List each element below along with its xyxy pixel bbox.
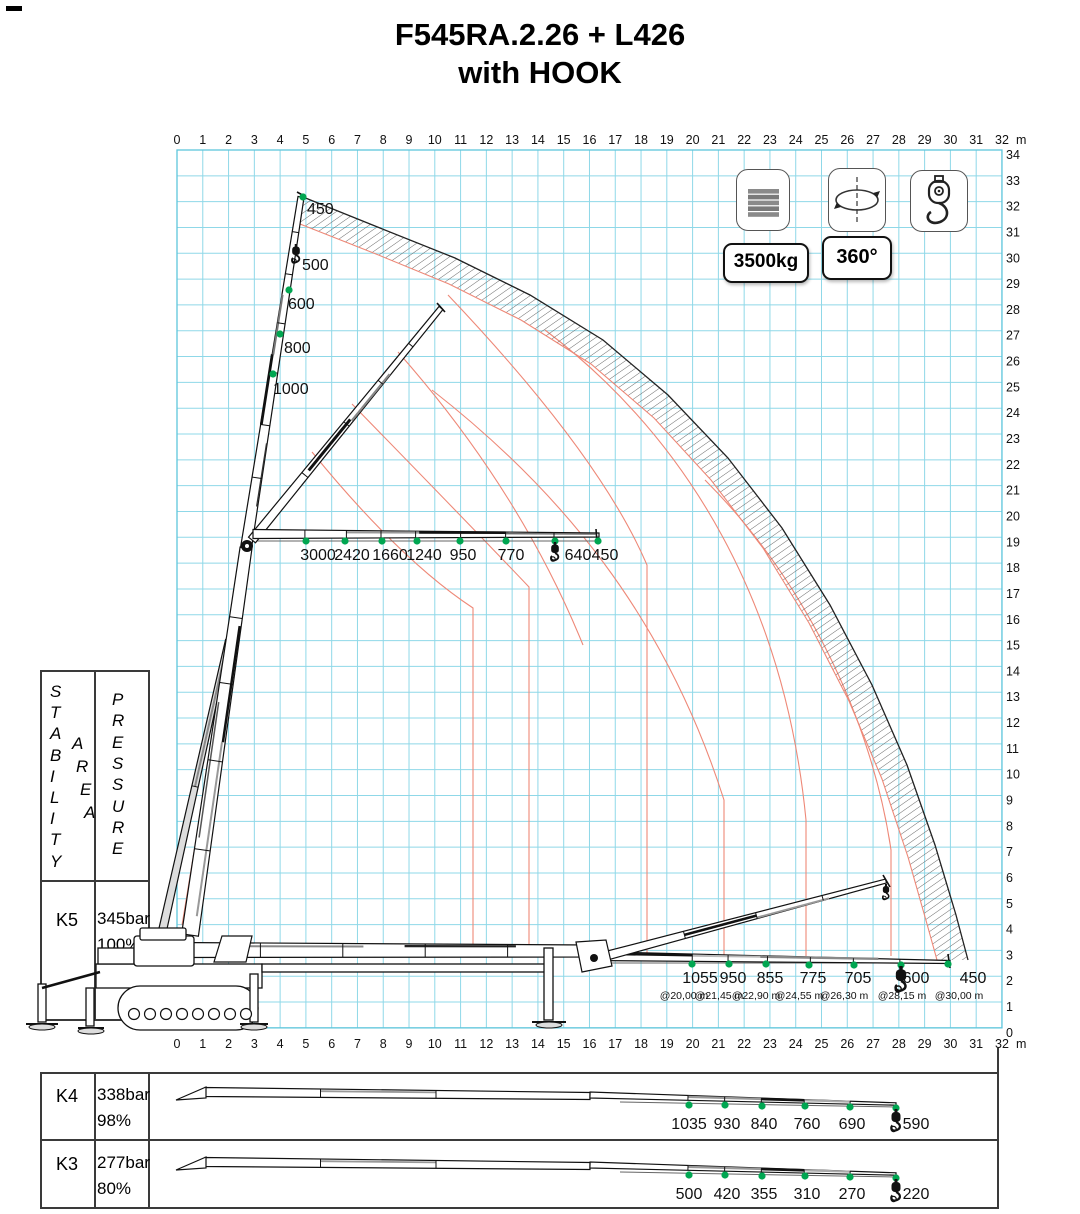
hook-icon [883, 884, 890, 900]
axis-label-right: 1 [1006, 1000, 1013, 1014]
horizontal-jib-load-value: 450 [592, 547, 619, 564]
vertical-jib-load-value: 450 [307, 201, 334, 218]
axis-label-top: 25 [815, 133, 829, 147]
limit-hatch-band [300, 197, 968, 960]
luffing-cylinder [158, 640, 230, 934]
boom-section-divider [684, 932, 686, 939]
boom-section [352, 374, 390, 420]
axis-label-right: 3 [1006, 948, 1013, 962]
knuckle-pivot [241, 540, 253, 552]
limit-inner-edge [300, 224, 937, 960]
plate [748, 212, 779, 217]
axis-label-top: 10 [428, 133, 442, 147]
axis-unit-top: m [1016, 133, 1026, 147]
outrigger-pad [78, 1028, 104, 1034]
axis-label-top: 19 [660, 133, 674, 147]
axis-label-bottom: 7 [354, 1037, 361, 1051]
vertical-jib-load-value: 500 [302, 257, 329, 274]
ground-boom-load-dot [725, 960, 732, 967]
vertical-letter: L [50, 788, 59, 808]
vertical-letter: I [50, 809, 55, 829]
outrigger-pad [536, 1022, 562, 1028]
boom-section [223, 626, 240, 742]
pressure-value: 345bar [97, 906, 150, 932]
hook-icon [895, 966, 906, 992]
axis-label-bottom: 30 [943, 1037, 957, 1051]
vertical-letter: R [76, 757, 88, 777]
k3-load-dot [892, 1174, 899, 1181]
ground-boom-load-value: 855 [757, 970, 784, 987]
plate [748, 206, 779, 211]
row-pressure-k3: 277bar 80% [97, 1150, 150, 1202]
k3-load-value: 355 [751, 1186, 778, 1203]
boom-section-divider [409, 343, 413, 346]
track-wheel [145, 1009, 156, 1020]
vertical-letter: T [50, 703, 60, 723]
boom-section-divider [230, 617, 242, 619]
vertical-letter: R [112, 711, 124, 731]
hook-icon [891, 1179, 901, 1202]
axis-label-right: 14 [1006, 664, 1020, 678]
axis-label-bottom: 16 [583, 1037, 597, 1051]
reach-arc [312, 452, 473, 956]
boom-section-divider [208, 760, 222, 762]
reach-arc [352, 404, 529, 956]
k4-main-boom [205, 1088, 590, 1100]
limit-outer-edge [303, 197, 968, 960]
axis-label-bottom: 5 [302, 1037, 309, 1051]
capacity-badge: 3500kg [723, 243, 809, 283]
axis-label-top: 8 [380, 133, 387, 147]
row-pressure-k5: 345bar 100% [97, 906, 150, 958]
vertical-jib-load-value: 1000 [273, 381, 309, 398]
percent-value: 98% [97, 1108, 150, 1134]
axis-label-bottom: 1 [199, 1037, 206, 1051]
axis-label-right: 2 [1006, 974, 1013, 988]
axis-label-bottom: 13 [505, 1037, 519, 1051]
pressure-value: 277bar [97, 1150, 150, 1176]
crane-base-part [96, 964, 262, 988]
axis-label-right: 21 [1006, 484, 1020, 498]
axis-label-bottom: 15 [557, 1037, 571, 1051]
vertical-letter: E [112, 839, 123, 859]
boom-section [804, 1170, 850, 1171]
reach-arc [705, 480, 891, 956]
table-line [40, 670, 149, 672]
ground-boom-load-radius: @22,90 m [732, 990, 781, 1002]
k4-boom-butt [176, 1087, 206, 1100]
title-line1: F545RA.2.26 + L426 [0, 16, 1080, 54]
table-line [40, 1207, 999, 1209]
horizontal-jib-load-value: 770 [498, 547, 525, 564]
boom-section-divider [278, 323, 285, 324]
crane-base-part [262, 964, 548, 972]
vertical-letter: A [72, 734, 83, 754]
boom-section-divider [270, 372, 278, 373]
horizontal-jib-load-dot [456, 537, 463, 544]
axis-label-right: 30 [1006, 251, 1020, 265]
axis-label-right: 11 [1006, 742, 1019, 756]
vertical-jib-load-dot [285, 286, 292, 293]
ground-boom-load-value: 775 [800, 970, 827, 987]
raised-ground-jib [597, 879, 887, 962]
reach-arc [448, 295, 647, 956]
axis-label-right: 32 [1006, 200, 1020, 214]
boom-section [761, 1169, 804, 1170]
k4-load-dot [758, 1102, 765, 1109]
k4-load-value: 840 [751, 1116, 778, 1133]
boom-section [688, 1097, 762, 1099]
vertical-jib-load-dot [299, 193, 306, 200]
boom-section-divider [344, 422, 349, 426]
axis-label-top: 18 [634, 133, 648, 147]
axis-label-right: 9 [1006, 794, 1013, 808]
k3-load-value: 420 [714, 1186, 741, 1203]
k4-load-dot [846, 1103, 853, 1110]
axis-label-right: 0 [1006, 1026, 1013, 1040]
horizontal-jib-load-dot [594, 537, 601, 544]
axis-label-top: 11 [454, 133, 467, 147]
ground-boom-load-value: 600 [903, 970, 930, 987]
boom-section [261, 354, 272, 424]
track-wheel [225, 1009, 236, 1020]
axis-label-top: 12 [479, 133, 493, 147]
jib-chord-line [620, 1172, 896, 1177]
axis-label-top: 4 [277, 133, 284, 147]
ground-boom-load-dot [850, 961, 857, 968]
track-wheel [129, 1009, 140, 1020]
hook-sheave-pin [938, 190, 941, 193]
axis-label-bottom: 26 [840, 1037, 854, 1051]
vertical-letter: A [84, 803, 95, 823]
ground-boom-load-radius: @24,55 m [775, 990, 824, 1002]
vertical-letter: S [112, 754, 123, 774]
axis-label-top: 22 [737, 133, 751, 147]
boom-section-divider [195, 849, 210, 851]
boom-section [804, 1100, 850, 1101]
table-line [997, 1048, 999, 1208]
rotation-icon-art [829, 169, 885, 231]
ground-boom-load-radius: @30,00 m [935, 990, 984, 1002]
axis-label-top: 24 [789, 133, 803, 147]
table-line [40, 880, 149, 882]
vertical-letter: B [50, 746, 61, 766]
ground-boom-load-dot [897, 961, 904, 968]
axis-label-right: 20 [1006, 509, 1020, 523]
axis-label-top: 20 [686, 133, 700, 147]
axis-label-top: 9 [406, 133, 413, 147]
boom-section [692, 956, 760, 957]
axis-label-right: 8 [1006, 819, 1013, 833]
k3-boom-butt [176, 1157, 206, 1170]
knuckle-pin [245, 544, 249, 548]
ground-boom-load-dot [762, 960, 769, 967]
axis-label-right: 28 [1006, 303, 1020, 317]
boom-section [761, 1099, 804, 1100]
reach-arc [545, 330, 806, 956]
vertical-jib-load-value: 800 [284, 340, 311, 357]
boom-section-divider [286, 274, 293, 275]
axis-label-top: 31 [969, 133, 983, 147]
boom-section [195, 640, 228, 787]
boom-section-divider [220, 683, 233, 685]
main-column-boom [182, 547, 252, 936]
axis-label-right: 6 [1006, 871, 1013, 885]
boom-section [321, 1161, 437, 1162]
axis-label-right: 23 [1006, 432, 1020, 446]
ground-boom-load-value: 450 [960, 970, 987, 987]
k3-load-dot [758, 1172, 765, 1179]
boom-section [273, 295, 282, 355]
boom-section-divider [822, 896, 823, 901]
axis-label-top: 28 [892, 133, 906, 147]
ground-jib [592, 952, 950, 964]
boom-section-divider [252, 477, 261, 478]
k4-jib [590, 1092, 896, 1105]
counterweight-icon [736, 169, 790, 231]
crane-load-chart-page: F545RA.2.26 + L426 with HOOK STABILITY A… [0, 0, 1080, 1214]
rotation-360-icon [828, 168, 886, 232]
axis-label-bottom: 18 [634, 1037, 648, 1051]
axis-label-right: 19 [1006, 535, 1020, 549]
row-pressure-k4: 338bar 98% [97, 1082, 150, 1134]
axis-label-bottom: 2 [225, 1037, 232, 1051]
horizontal-jib-load-value: 2420 [334, 547, 370, 564]
k3-load-value: 310 [794, 1186, 821, 1203]
boom-section-divider [302, 473, 308, 478]
axis-label-bottom: 12 [479, 1037, 493, 1051]
outrigger-pad [29, 1024, 55, 1030]
pressure-value: 338bar [97, 1082, 150, 1108]
axis-label-right: 5 [1006, 897, 1013, 911]
axis-label-right: 10 [1006, 768, 1020, 782]
track-wheel [241, 1009, 252, 1020]
ground-boom-load-value: 950 [720, 970, 747, 987]
track-wheel [177, 1009, 188, 1020]
axis-label-bottom: 11 [454, 1037, 467, 1051]
vertical-letter: I [50, 767, 55, 787]
axis-label-right: 4 [1006, 923, 1013, 937]
k4-load-dot [685, 1101, 692, 1108]
table-line [40, 670, 42, 1020]
table-line [40, 1019, 149, 1021]
axis-label-top: 13 [505, 133, 519, 147]
plate [748, 195, 779, 200]
boom-section [684, 916, 756, 935]
axis-label-bottom: 21 [711, 1037, 725, 1051]
k4-load-value: 690 [839, 1116, 866, 1133]
corner-mark [6, 6, 22, 11]
axis-label-bottom: 9 [406, 1037, 413, 1051]
axis-label-right: 33 [1006, 174, 1020, 188]
axis-label-top: 29 [918, 133, 932, 147]
axis-label-bottom: 31 [969, 1037, 983, 1051]
boom-section [199, 702, 219, 837]
ground-main-boom [178, 943, 590, 958]
axis-label-right: 24 [1006, 406, 1020, 420]
k4-load-value: 1035 [671, 1116, 707, 1133]
vertical-letter: S [50, 682, 61, 702]
ground-boom-load-radius: @21,45 m [695, 990, 744, 1002]
axis-label-right: 17 [1006, 587, 1020, 601]
vertical-letter: S [112, 775, 123, 795]
horizontal-jib-load-value: 3000 [300, 547, 336, 564]
horizontal-jib-load-value: 1660 [372, 547, 408, 564]
ground-boom-load-value: 705 [845, 970, 872, 987]
track-wheel [209, 1009, 220, 1020]
row-key-k4: K4 [40, 1086, 94, 1107]
vertical-letter: E [80, 780, 91, 800]
k3-load-dot [801, 1172, 808, 1179]
boom-axis-red-line [257, 312, 438, 534]
k3-load-dot [721, 1171, 728, 1178]
axis-label-top: 26 [840, 133, 854, 147]
axis-label-bottom: 14 [531, 1037, 545, 1051]
vertical-jib-load-value: 600 [288, 296, 315, 313]
ground-boom-load-dot [944, 960, 951, 967]
rotation-badge: 360° [822, 236, 892, 280]
axis-label-right: 34 [1006, 148, 1020, 162]
horizontal-jib [253, 530, 599, 539]
vertical-letter: U [112, 797, 124, 817]
axis-label-right: 31 [1006, 225, 1020, 239]
plate [748, 201, 779, 206]
title-line2: with HOOK [0, 54, 1080, 92]
boom-section-divider [261, 425, 270, 426]
vertical-jib-load-dot [292, 247, 299, 254]
axis-label-bottom: 28 [892, 1037, 906, 1051]
jib-tip-mark [437, 303, 445, 312]
table-line [40, 1139, 999, 1141]
axis-label-right: 27 [1006, 329, 1020, 343]
reach-arc [432, 390, 724, 956]
vertical-letter: P [112, 690, 123, 710]
grid-frame [177, 150, 1002, 1028]
boom-section [688, 1167, 762, 1169]
boom-section-divider [292, 232, 298, 233]
jib-tip-mark [883, 875, 890, 887]
row-key-k5: K5 [40, 910, 94, 931]
reach-arc [398, 352, 583, 645]
axis-label-bottom: 25 [815, 1037, 829, 1051]
vertical-letter: T [50, 830, 60, 850]
axis-label-top: 1 [199, 133, 206, 147]
boom-pivot-bracket [214, 936, 252, 962]
boom-section [197, 742, 222, 916]
axis-label-bottom: 22 [737, 1037, 751, 1051]
axis-label-right: 18 [1006, 561, 1020, 575]
horizontal-jib-load-value: 950 [450, 547, 477, 564]
ground-boom-load-dot [805, 961, 812, 968]
axis-label-top: 17 [608, 133, 622, 147]
axis-label-top: 5 [302, 133, 309, 147]
counterweight-icon-art [737, 170, 789, 230]
k3-load-dot [685, 1171, 692, 1178]
crane-base-part [250, 974, 258, 1022]
axis-label-top: 21 [711, 133, 725, 147]
hook-icon [551, 542, 559, 561]
crane-base-part [118, 986, 258, 1030]
horizontal-jib-load-value: 1240 [406, 547, 442, 564]
k4-load-dot [721, 1101, 728, 1108]
axis-label-top: 14 [531, 133, 545, 147]
axis-label-top: 32 [995, 133, 1009, 147]
ground-boom-load-radius: @20,00 m [660, 990, 709, 1002]
axis-label-right: 16 [1006, 613, 1020, 627]
axis-label-bottom: 19 [660, 1037, 674, 1051]
axis-label-bottom: 0 [174, 1037, 181, 1051]
hook-curve [928, 203, 947, 223]
vertical-letter: E [112, 733, 123, 753]
k3-load-value: 270 [839, 1186, 866, 1203]
boom-section [257, 443, 267, 506]
ground-jib-knuckle-bracket [576, 940, 612, 972]
horizontal-jib-load-dot [551, 537, 558, 544]
table-line [148, 670, 150, 1020]
axis-label-bottom: 24 [789, 1037, 803, 1051]
boom-section-divider [756, 913, 758, 919]
vertical-jib [241, 197, 304, 549]
boom-section [309, 419, 351, 470]
page-title: F545RA.2.26 + L426 with HOOK [0, 16, 1080, 92]
vertical-letter: R [112, 818, 124, 838]
axis-label-top: 16 [583, 133, 597, 147]
axis-label-right: 12 [1006, 716, 1020, 730]
k4-load-value: 590 [903, 1116, 930, 1133]
diagonal-jib [249, 306, 443, 542]
vertical-letter: Y [50, 852, 61, 872]
k3-load-value: 500 [676, 1186, 703, 1203]
hook-icon-art [911, 171, 967, 231]
axis-label-top: 27 [866, 133, 880, 147]
table-line [94, 1072, 96, 1208]
boom-section [614, 954, 693, 955]
ground-boom-load-radius: @28,15 m [878, 990, 927, 1002]
axis-label-bottom: 17 [608, 1037, 622, 1051]
track-wheel [193, 1009, 204, 1020]
boom-section-divider [378, 380, 383, 384]
axis-label-bottom: 20 [686, 1037, 700, 1051]
percent-value: 80% [97, 1176, 150, 1202]
k3-jib [590, 1162, 896, 1175]
k4-load-dot [892, 1104, 899, 1111]
k4-load-value: 760 [794, 1116, 821, 1133]
k4-load-dot [801, 1102, 808, 1109]
outrigger-beam [42, 972, 100, 988]
boom-axis-red-line [182, 552, 243, 925]
crane-base-part [544, 948, 553, 1020]
boom-section [760, 957, 878, 959]
axis-label-bottom: 27 [866, 1037, 880, 1051]
horizontal-jib-load-dot [378, 537, 385, 544]
axis-label-bottom: 10 [428, 1037, 442, 1051]
axis-label-top: 3 [251, 133, 258, 147]
hook-icon [891, 1109, 901, 1132]
vertical-letter: A [50, 724, 61, 744]
axis-label-top: 7 [354, 133, 361, 147]
jib-tip-mark [297, 192, 306, 197]
horizontal-jib-load-dot [502, 537, 509, 544]
row-key-k3: K3 [40, 1154, 94, 1175]
horizontal-jib-load-value: 640 [565, 547, 592, 564]
hook-icon [292, 244, 300, 263]
boom-section [757, 898, 829, 917]
vertical-jib-load-dot [269, 370, 276, 377]
k3-load-dot [846, 1173, 853, 1180]
axis-label-right: 25 [1006, 380, 1020, 394]
hook-icon [910, 170, 968, 232]
horizontal-jib-load-dot [413, 537, 420, 544]
